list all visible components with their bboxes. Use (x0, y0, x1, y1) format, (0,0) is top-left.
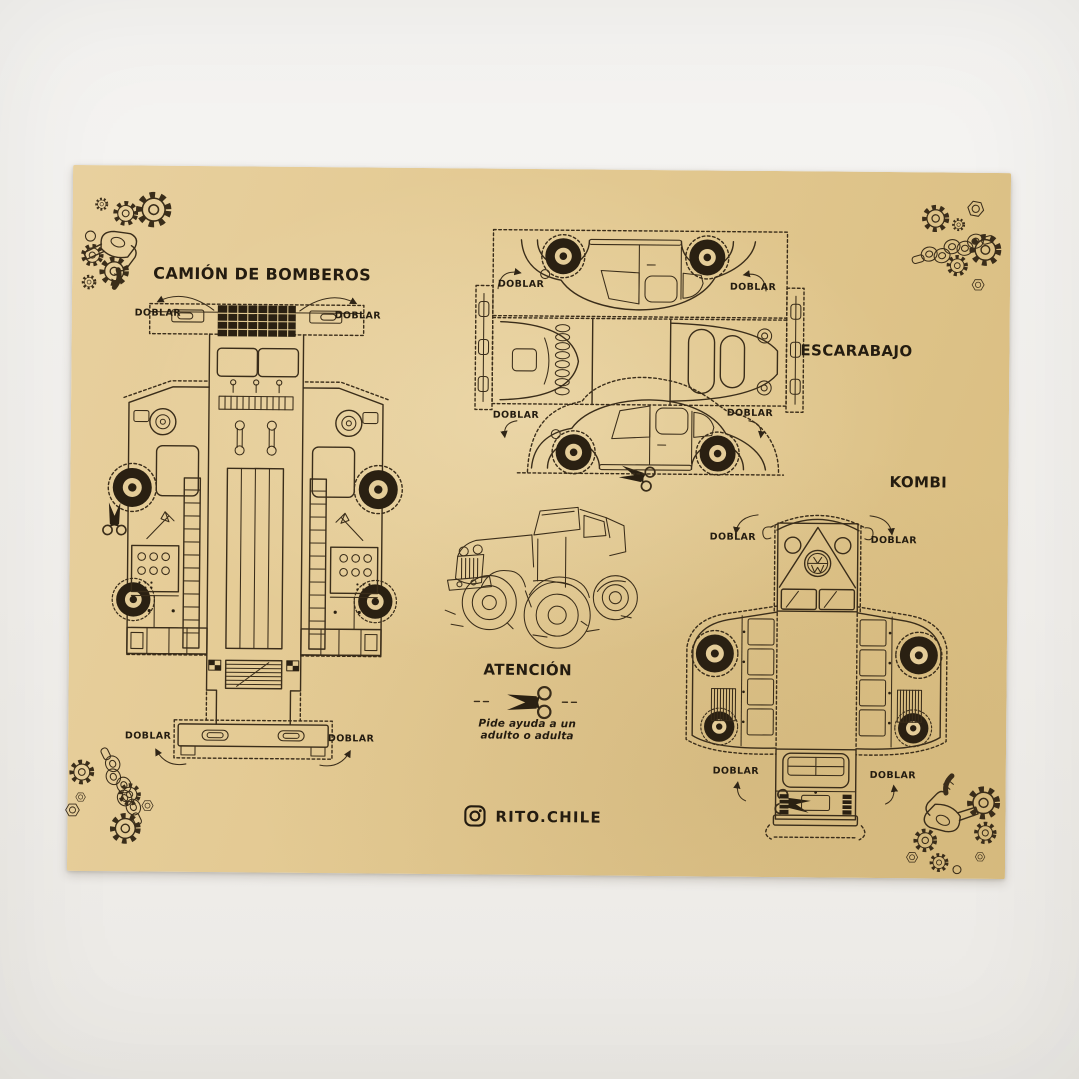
fire-truck-side-panel (301, 382, 403, 656)
kombi-title: KOMBI (858, 473, 978, 492)
gear-icon (83, 276, 95, 288)
hex-nut-icon (76, 793, 86, 801)
kombi-template (680, 498, 953, 832)
photo-background: CAMIÓN DE BOMBEROS ESCARABAJO KOMBI DOBL… (0, 0, 1079, 1079)
gear-icon (925, 207, 947, 229)
gear-icon (113, 816, 138, 841)
gear-icon (931, 855, 946, 870)
fold-label: DOBLAR (706, 765, 766, 777)
gear-icon (948, 256, 967, 275)
gear-icon (72, 762, 92, 782)
gear-icon (119, 783, 141, 805)
hex-nut-icon (142, 801, 153, 811)
instagram-handle: RITO.CHILE (495, 807, 602, 826)
fold-label: DOBLAR (128, 307, 188, 319)
corner-decoration-top-right (909, 200, 998, 290)
fold-label: DOBLAR (703, 531, 763, 543)
fold-label: DOBLAR (864, 535, 924, 547)
fold-label: DOBLAR (328, 310, 388, 322)
fold-label: DOBLAR (118, 730, 178, 742)
fire-truck-side-panel (107, 380, 209, 654)
attention-scissors (474, 686, 580, 718)
beetle-template (473, 221, 805, 479)
gear-icon (138, 194, 169, 225)
fold-label: DOBLAR (863, 770, 923, 782)
fire-truck-template (118, 291, 392, 763)
fold-label: DOBLAR (486, 410, 546, 422)
attention-note-line2: adulto o adulta (457, 729, 597, 742)
gear-icon (972, 237, 998, 263)
attention-note: Pide ayuda a un adulto o adulta (457, 717, 597, 742)
kombi-side-panel (856, 607, 947, 756)
hex-nut-icon (66, 804, 80, 816)
kombi-side-panel (686, 605, 777, 754)
scissors-icon (507, 687, 551, 718)
fuel-nozzle-icon (76, 222, 141, 291)
gear-icon (114, 201, 138, 225)
fold-label: DOBLAR (723, 282, 783, 294)
fire-truck-title: CAMIÓN DE BOMBEROS (142, 264, 382, 285)
gear-icon (953, 219, 964, 230)
jeep-sketch (437, 494, 638, 653)
paper-sheet: CAMIÓN DE BOMBEROS ESCARABAJO KOMBI DOBL… (67, 165, 1011, 879)
hex-nut-icon (906, 852, 917, 862)
instagram-icon (463, 804, 486, 827)
hex-nut-icon (975, 853, 985, 861)
beetle-title: ESCARABAJO (786, 341, 926, 360)
fold-label: DOBLAR (491, 279, 551, 291)
attention-title: ATENCIÓN (468, 660, 588, 679)
fold-label: DOBLAR (720, 408, 780, 420)
gear-icon (970, 789, 997, 816)
beetle-side-view-flipped (521, 234, 756, 311)
fold-label: DOBLAR (321, 733, 381, 745)
footer: RITO.CHILE (463, 804, 602, 828)
hex-nut-icon (972, 280, 984, 290)
gear-icon (96, 199, 107, 210)
gear-icon (916, 831, 935, 850)
attention-note-line1: Pide ayuda a un (457, 717, 597, 730)
gear-icon (975, 822, 996, 843)
hex-nut-icon (967, 201, 985, 217)
